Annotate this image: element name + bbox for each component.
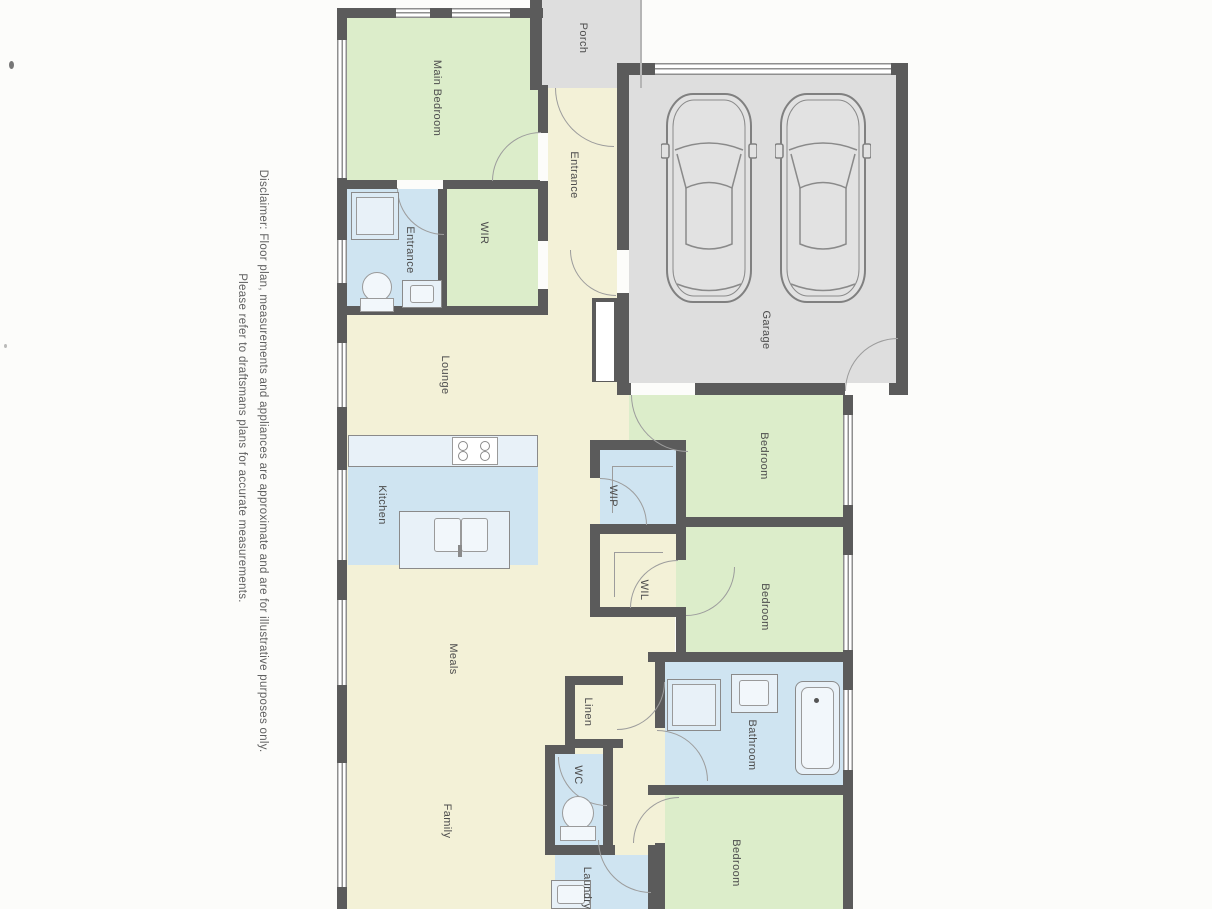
window: [337, 40, 347, 178]
window: [843, 555, 853, 650]
entry-closet: [592, 298, 618, 382]
car-icon: [661, 88, 757, 308]
label-wil: WIL: [638, 580, 650, 601]
label-bedroom3: Bedroom: [759, 583, 771, 630]
label-wir: WIR: [478, 222, 490, 245]
label-linen: Linen: [582, 698, 594, 727]
room-wir: [447, 189, 538, 306]
tap-icon: [458, 545, 462, 557]
window: [337, 763, 347, 887]
window: [843, 415, 853, 505]
label-main-bedroom: Main Bedroom: [430, 58, 444, 138]
label-kitchen: Kitchen: [376, 485, 388, 525]
window: [843, 690, 853, 770]
label-garage: Garage: [760, 310, 772, 349]
window: [337, 240, 347, 283]
disclaimer-line1: Disclaimer: Floor plan, measurements and…: [257, 170, 269, 753]
label-wip: WIP: [607, 485, 619, 507]
window: [452, 8, 510, 18]
sink-bowl-right: [461, 518, 488, 552]
floor-plan-scan: Porch Main Bedroom Entrance WIR Entrance…: [0, 0, 1212, 909]
window: [337, 600, 347, 685]
basin-icon: [410, 285, 434, 303]
scan-speck: [4, 344, 7, 348]
label-wc: WC: [572, 765, 584, 784]
window: [337, 470, 347, 560]
porch-edge-line: [640, 0, 642, 88]
car-icon: [775, 88, 871, 308]
garage-door-opening: [655, 63, 891, 75]
label-laundry: Laundry: [581, 867, 593, 909]
label-ensuite: Entrance: [404, 226, 416, 273]
sink-bowl-left: [434, 518, 461, 552]
drain-icon: [814, 698, 819, 703]
scan-speck: [9, 61, 14, 69]
shower-icon: [351, 192, 399, 240]
label-bedroom4: Bedroom: [730, 839, 742, 886]
shower-icon: [667, 679, 721, 731]
label-family: Family: [441, 804, 453, 839]
room-bedroom4: [665, 795, 843, 909]
label-lounge: Lounge: [439, 355, 451, 394]
label-bathroom: Bathroom: [746, 720, 758, 771]
toilet-cistern: [560, 826, 596, 841]
kitchen-counter: [348, 435, 538, 467]
label-meals: Meals: [447, 643, 459, 674]
toilet-cistern: [360, 298, 394, 312]
pantry-shelf-line: [612, 466, 673, 513]
label-entrance-hall: Entrance: [568, 151, 580, 198]
window: [337, 343, 347, 407]
toilet-icon: [562, 796, 594, 830]
window: [396, 8, 430, 18]
label-porch: Porch: [577, 23, 589, 54]
label-bedroom2: Bedroom: [758, 432, 770, 479]
basin-icon: [739, 680, 769, 706]
disclaimer-line2: Please refer to draftsmans plans for acc…: [236, 273, 248, 603]
